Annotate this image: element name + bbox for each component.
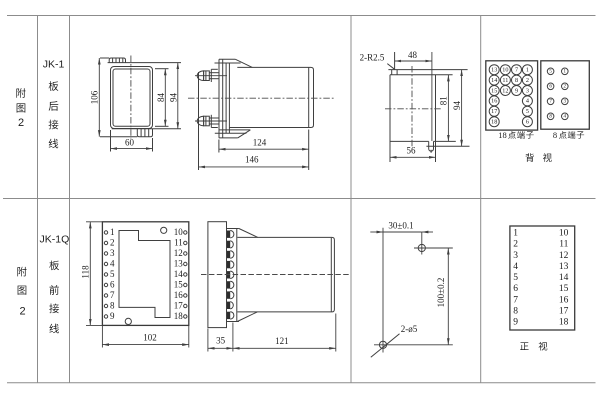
svg-text:35: 35: [216, 336, 226, 346]
svg-text:1: 1: [526, 67, 529, 74]
svg-text:2: 2: [526, 77, 529, 84]
svg-text:7: 7: [515, 67, 518, 74]
svg-text:17: 17: [491, 108, 497, 115]
svg-text:11: 11: [174, 237, 183, 247]
svg-text:118: 118: [80, 265, 90, 279]
svg-text:6: 6: [513, 284, 518, 294]
svg-text:106: 106: [89, 90, 99, 104]
svg-text:8: 8: [513, 307, 518, 317]
svg-text:2-R2.5: 2-R2.5: [360, 52, 385, 62]
svg-text:5: 5: [526, 108, 529, 115]
svg-text:48: 48: [408, 50, 418, 60]
svg-text:5: 5: [513, 273, 518, 283]
svg-text:3: 3: [526, 87, 529, 94]
svg-text:16: 16: [491, 98, 497, 105]
svg-text:7: 7: [110, 290, 115, 300]
svg-text:17: 17: [174, 300, 184, 310]
svg-text:2: 2: [513, 240, 518, 250]
svg-text:8: 8: [515, 77, 518, 84]
svg-text:94: 94: [168, 93, 178, 103]
svg-text:18: 18: [491, 119, 497, 126]
svg-text:9: 9: [515, 87, 518, 94]
svg-text:2: 2: [110, 237, 115, 247]
svg-text:12: 12: [502, 87, 508, 94]
svg-text:100±0.2: 100±0.2: [436, 278, 446, 308]
svg-text:18: 18: [559, 318, 569, 328]
svg-text:1: 1: [513, 228, 518, 238]
svg-text:11: 11: [559, 240, 568, 250]
svg-text:10: 10: [502, 67, 508, 74]
svg-text:2-ø5: 2-ø5: [401, 324, 418, 334]
svg-text:14: 14: [491, 77, 497, 84]
svg-text:94: 94: [452, 101, 462, 111]
svg-text:8: 8: [110, 300, 115, 310]
svg-text:121: 121: [275, 336, 289, 346]
svg-text:13: 13: [491, 67, 497, 74]
svg-text:6: 6: [526, 119, 529, 126]
svg-text:9: 9: [513, 318, 518, 328]
svg-text:12: 12: [174, 248, 183, 258]
svg-text:16: 16: [559, 295, 569, 305]
svg-text:102: 102: [143, 332, 157, 342]
svg-text:84: 84: [156, 93, 166, 103]
svg-text:4: 4: [110, 258, 115, 268]
svg-text:8: 8: [553, 130, 557, 140]
svg-text:13: 13: [174, 258, 184, 268]
svg-text:15: 15: [174, 279, 184, 289]
svg-text:18: 18: [498, 130, 507, 140]
svg-text:7: 7: [513, 295, 518, 305]
svg-text:15: 15: [559, 284, 569, 294]
svg-text:15: 15: [491, 87, 497, 94]
svg-text:14: 14: [559, 273, 569, 283]
svg-text:13: 13: [559, 262, 569, 272]
svg-text:124: 124: [253, 137, 267, 147]
svg-text:10: 10: [174, 227, 184, 237]
svg-text:18: 18: [174, 311, 184, 321]
svg-text:3: 3: [110, 248, 115, 258]
svg-text:1: 1: [110, 227, 115, 237]
svg-text:JK-1Q: JK-1Q: [40, 233, 70, 245]
svg-text:4: 4: [526, 98, 529, 105]
svg-text:JK-1: JK-1: [43, 58, 65, 70]
svg-text:9: 9: [110, 311, 115, 321]
svg-text:56: 56: [407, 145, 417, 155]
svg-text:5: 5: [110, 269, 115, 279]
svg-text:30±0.1: 30±0.1: [388, 220, 413, 230]
svg-text:60: 60: [125, 138, 135, 148]
svg-text:10: 10: [559, 228, 569, 238]
svg-text:14: 14: [174, 269, 184, 279]
svg-text:17: 17: [559, 307, 569, 317]
svg-text:16: 16: [174, 290, 184, 300]
svg-text:4: 4: [513, 262, 518, 272]
svg-text:3: 3: [513, 251, 518, 261]
svg-text:146: 146: [245, 154, 259, 164]
svg-text:12: 12: [559, 251, 569, 261]
svg-text:81: 81: [438, 96, 448, 105]
svg-text:2: 2: [18, 117, 24, 129]
svg-text:2: 2: [19, 305, 25, 317]
svg-text:6: 6: [110, 279, 115, 289]
svg-text:11: 11: [502, 77, 508, 84]
